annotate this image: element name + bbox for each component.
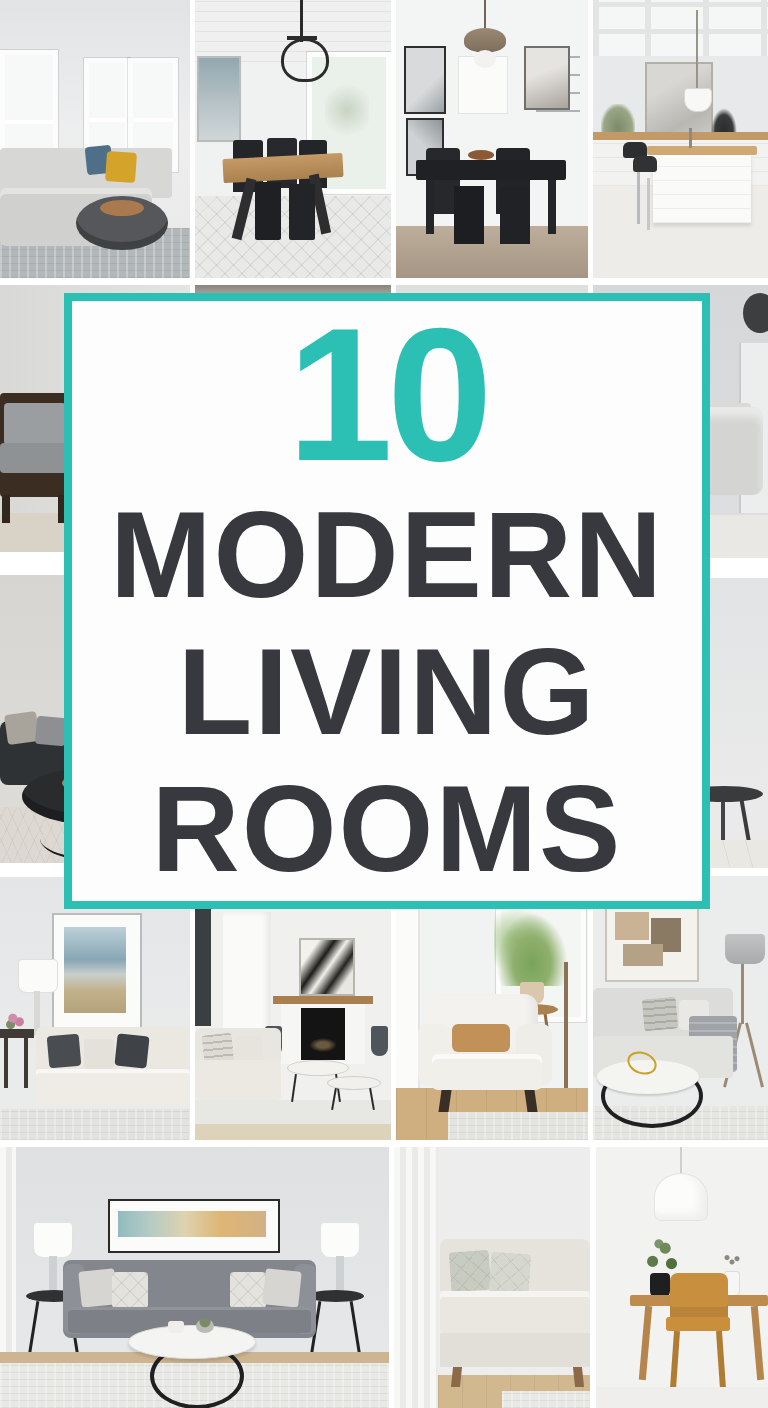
- art-patch: [615, 912, 649, 940]
- patterned-pillow: [230, 1272, 266, 1308]
- chair-cushion: [4, 403, 66, 445]
- chair-leg: [716, 1331, 726, 1389]
- white-floor: [596, 1387, 768, 1408]
- pendant-chain: [696, 10, 698, 90]
- wood-mantel: [273, 996, 373, 1004]
- photo-sofa-with-throw: [593, 876, 768, 1140]
- counter-plant: [601, 104, 635, 134]
- seat-cushion: [0, 443, 70, 473]
- black-kettle: [711, 108, 737, 134]
- gallery-frame: [524, 46, 570, 110]
- light-pillow: [84, 1039, 114, 1069]
- greenery-view: [325, 80, 369, 140]
- title-line-rooms: ROOMS: [72, 761, 702, 898]
- dry-twigs: [722, 1251, 742, 1273]
- island-top: [647, 146, 757, 155]
- sheer-curtain: [394, 1147, 438, 1408]
- desk-leg: [751, 1306, 764, 1380]
- desk-leg: [639, 1306, 652, 1380]
- side-table-leg: [4, 1038, 8, 1088]
- title-number: 10: [72, 315, 702, 473]
- wall-art: [197, 56, 241, 142]
- charcoal-pillow: [114, 1033, 149, 1068]
- title-line-living: LIVING: [72, 624, 702, 761]
- gallery-frame: [404, 46, 446, 114]
- lamp-base: [336, 1256, 344, 1292]
- fire-logs: [309, 1038, 337, 1052]
- black-chair: [500, 186, 530, 244]
- table-plant: [196, 1319, 214, 1333]
- photo-wood-desk-chair: [596, 1147, 768, 1408]
- panoramic-art: [108, 1199, 280, 1253]
- seat-cushion: [432, 1054, 542, 1090]
- fruit-bowl: [468, 150, 494, 160]
- lamp-pole: [741, 964, 744, 1024]
- lamp-shade: [33, 1222, 73, 1258]
- photo-gray-sofa-symmetric: [0, 1147, 389, 1408]
- tripod-lamp-shade: [725, 934, 765, 964]
- photo-dining-room-farmhouse: [195, 0, 391, 278]
- table-leg: [291, 1074, 297, 1102]
- chair-leg: [670, 1331, 680, 1389]
- lamp-shade: [18, 959, 58, 993]
- photo-cream-sofa-seascape: [0, 877, 190, 1140]
- tripod-leg: [745, 1023, 764, 1088]
- patterned-pillow: [112, 1272, 148, 1308]
- pendant-cord: [680, 1147, 682, 1175]
- dining-chair: [255, 182, 281, 240]
- kitchen-island: [653, 155, 751, 223]
- bar-stool: [633, 156, 657, 172]
- sofa-base: [440, 1333, 590, 1367]
- black-chair: [454, 186, 484, 244]
- table-leg: [426, 180, 434, 234]
- chair-back: [670, 1273, 728, 1321]
- rug: [448, 1112, 588, 1140]
- chair-seat: [666, 1317, 730, 1331]
- faucet: [689, 128, 692, 148]
- photo-living-room-sectional: [0, 0, 190, 278]
- tan-pillow: [452, 1024, 510, 1052]
- table-leg: [350, 1301, 362, 1357]
- pin-collage: 10 MODERN LIVING ROOMS: [0, 0, 768, 1408]
- chandelier-ring: [287, 36, 317, 40]
- sofa-seat: [36, 1069, 190, 1105]
- urn: [371, 1026, 388, 1056]
- black-dining-table: [416, 160, 566, 180]
- photo-white-armchair: [396, 876, 588, 1140]
- rug: [502, 1391, 590, 1408]
- wood-floor: [195, 1124, 391, 1140]
- dining-chair: [289, 184, 315, 240]
- striped-pillow: [642, 997, 679, 1032]
- pendant-shade: [654, 1173, 708, 1221]
- gray-pillow: [35, 716, 67, 747]
- lamp-shade: [320, 1222, 360, 1258]
- landscape-image: [118, 1211, 266, 1237]
- yellow-pillow: [105, 151, 137, 183]
- title-text: MODERN LIVING ROOMS: [72, 487, 702, 898]
- side-table: [0, 1029, 34, 1038]
- abstract-art: [299, 938, 355, 996]
- coffered-ceiling: [593, 0, 768, 56]
- photo-beige-sofa-curtain: [394, 1147, 590, 1408]
- photo-dining-nook: [396, 0, 588, 278]
- photo-fireplace-living-room: [195, 876, 391, 1140]
- title-line-modern: MODERN: [72, 487, 702, 624]
- sofa-seat: [195, 1060, 281, 1100]
- rug: [0, 1109, 190, 1140]
- curtain: [0, 1147, 16, 1359]
- window-frame: [195, 902, 211, 1026]
- light-pillow: [262, 1268, 302, 1308]
- coffee-table-top: [128, 1325, 256, 1359]
- side-table: [308, 1290, 364, 1302]
- photo-kitchen-island: [593, 0, 768, 278]
- chandelier: [281, 38, 329, 82]
- floor-lamp-pole: [564, 962, 568, 1088]
- lamp-base: [49, 1256, 57, 1292]
- pink-flowers: [4, 1011, 26, 1029]
- wood-tray: [100, 200, 144, 216]
- art-patch: [623, 944, 663, 966]
- table-leg: [548, 180, 556, 234]
- seascape-image: [64, 927, 126, 1013]
- spiky-plant: [494, 910, 570, 986]
- seascape-art: [52, 913, 142, 1031]
- stool-post: [637, 172, 640, 224]
- table-leg: [28, 1301, 40, 1357]
- patterned-pillow: [489, 1252, 532, 1295]
- pendant-globe: [474, 50, 496, 68]
- abstract-art: [605, 902, 699, 982]
- firebox: [301, 1008, 345, 1060]
- wood-floor: [396, 226, 588, 278]
- charcoal-pillow: [47, 1034, 82, 1069]
- wall-ornament: [743, 293, 768, 333]
- table-decor: [168, 1321, 184, 1333]
- brass-pendant: [464, 28, 506, 52]
- chair-leg: [2, 495, 10, 523]
- patterned-pillow: [449, 1250, 492, 1293]
- stool-post: [647, 178, 650, 230]
- sofa-leg: [573, 1367, 584, 1387]
- title-card: 10 MODERN LIVING ROOMS: [64, 293, 710, 909]
- seat-cushion: [440, 1291, 590, 1333]
- pendant-cord: [484, 0, 486, 30]
- pendant-shade: [684, 88, 712, 112]
- wood-countertop: [593, 132, 768, 140]
- side-table-leg: [24, 1038, 28, 1088]
